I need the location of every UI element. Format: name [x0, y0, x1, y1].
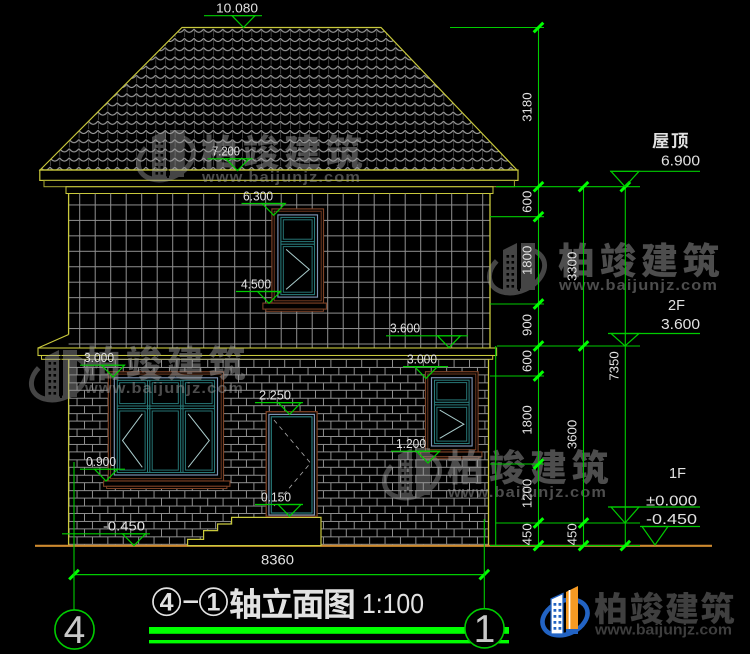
svg-text:8360: 8360: [261, 552, 294, 568]
svg-text:10.080: 10.080: [216, 1, 258, 16]
svg-text:1800: 1800: [520, 405, 535, 434]
svg-text:0.900: 0.900: [86, 454, 116, 469]
svg-text:3300: 3300: [565, 252, 580, 281]
svg-text:2F: 2F: [668, 298, 685, 314]
svg-text:1:100: 1:100: [362, 588, 424, 619]
svg-text:1: 1: [207, 589, 221, 617]
svg-text:0.150: 0.150: [261, 489, 291, 504]
svg-text:-0.450: -0.450: [103, 519, 145, 534]
svg-text:6.900: 6.900: [661, 154, 700, 170]
svg-text:3.600: 3.600: [661, 317, 700, 333]
svg-text:www.baijunjz.com: www.baijunjz.com: [558, 278, 718, 294]
svg-text:3600: 3600: [565, 420, 580, 449]
svg-text:www.baijunjz.com: www.baijunjz.com: [84, 381, 244, 397]
svg-text:3180: 3180: [520, 92, 535, 121]
svg-text:450: 450: [565, 523, 580, 545]
svg-text:4: 4: [160, 589, 174, 617]
svg-text:1800: 1800: [520, 246, 535, 275]
svg-text:600: 600: [520, 191, 535, 213]
svg-text:1: 1: [474, 608, 496, 651]
svg-text:-0.450: -0.450: [646, 512, 697, 528]
svg-text:900: 900: [520, 314, 535, 336]
svg-text:4.500: 4.500: [241, 276, 271, 291]
svg-text:600: 600: [520, 350, 535, 372]
svg-text:1.200: 1.200: [396, 436, 426, 451]
svg-text:450: 450: [520, 523, 535, 545]
svg-text:1200: 1200: [520, 479, 535, 508]
svg-text:3.000: 3.000: [407, 351, 437, 366]
svg-text:www.baijunjz.com: www.baijunjz.com: [594, 622, 732, 639]
svg-text:3.000: 3.000: [84, 350, 114, 365]
svg-text:3.600: 3.600: [390, 321, 420, 336]
svg-text:7350: 7350: [606, 351, 621, 380]
svg-text:6.300: 6.300: [243, 188, 273, 203]
svg-text:4: 4: [64, 609, 86, 652]
svg-text:www.baijunjz.com: www.baijunjz.com: [201, 170, 361, 186]
svg-text:2.250: 2.250: [259, 387, 291, 402]
svg-text:7.200: 7.200: [212, 144, 240, 159]
svg-text:1F: 1F: [669, 466, 686, 482]
